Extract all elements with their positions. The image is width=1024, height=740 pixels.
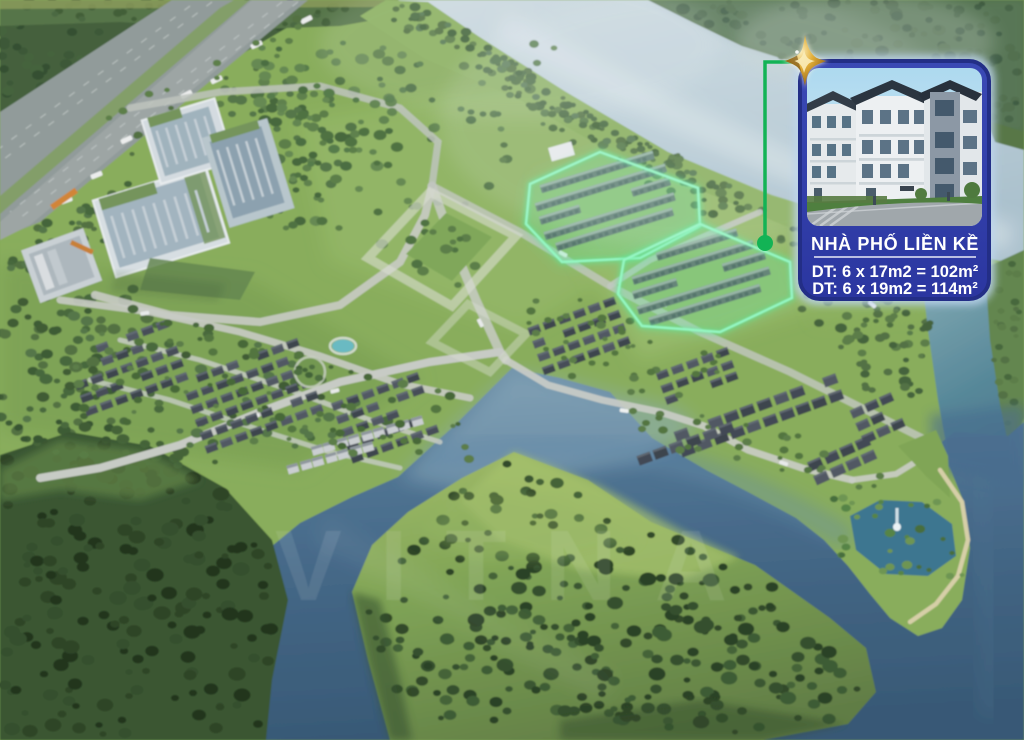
svg-text:DT: 6 x 17m2 = 102m²: DT: 6 x 17m2 = 102m² <box>812 263 979 281</box>
svg-text:NHÀ PHỐ LIỀN KỀ: NHÀ PHỐ LIỀN KỀ <box>811 233 979 254</box>
svg-text:DT: 6 x 19m2 = 114m²: DT: 6 x 19m2 = 114m² <box>812 280 978 298</box>
